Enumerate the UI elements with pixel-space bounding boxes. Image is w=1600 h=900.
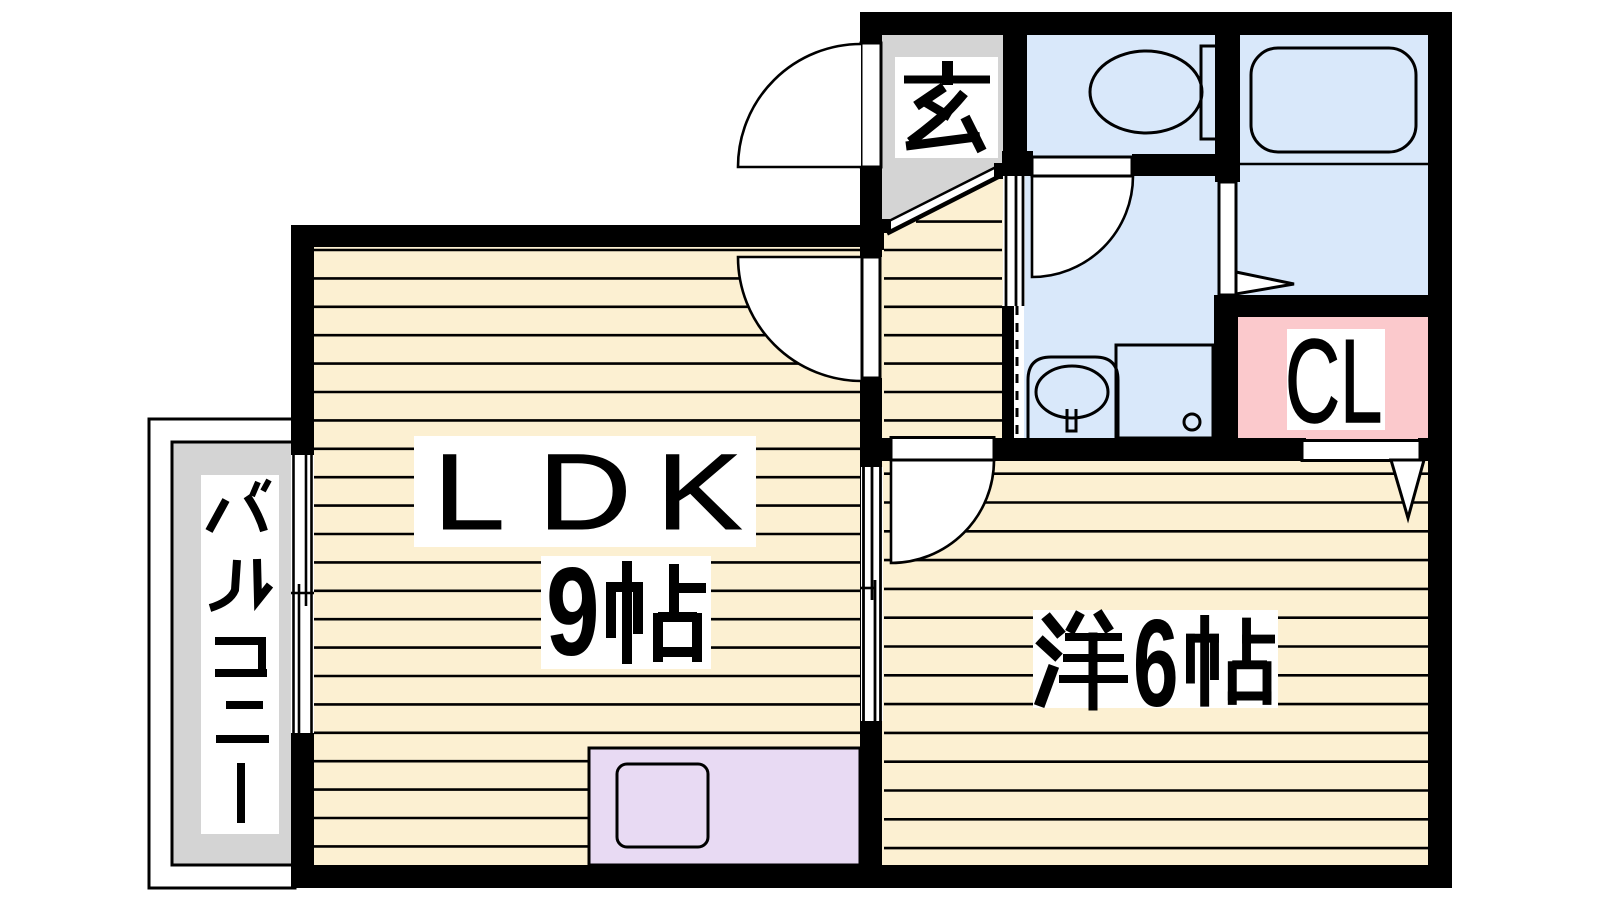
svg-text:D: D — [538, 432, 632, 552]
svg-text:6: 6 — [1133, 595, 1179, 733]
svg-text:9: 9 — [546, 542, 600, 682]
svg-text:L: L — [433, 432, 505, 552]
svg-text:CL: CL — [1285, 316, 1382, 448]
svg-text:K: K — [656, 432, 742, 552]
